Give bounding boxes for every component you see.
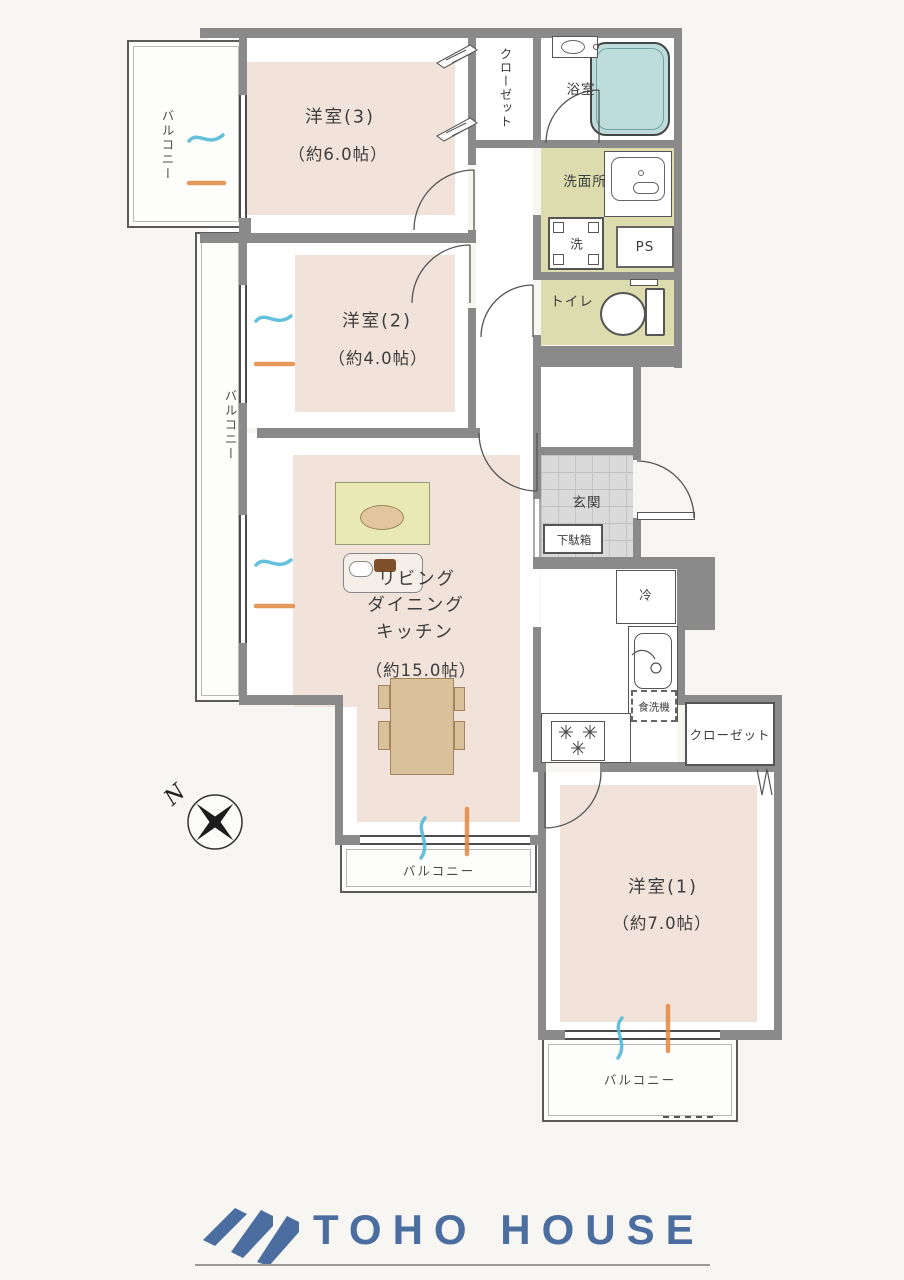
burner-icon xyxy=(559,725,573,739)
drain-icon xyxy=(651,663,661,673)
balcony-topleft-label: バルコニー xyxy=(158,109,177,182)
balcony-bottom-label: バルコニー xyxy=(403,861,475,880)
dishwasher-label: 食洗機 xyxy=(638,700,670,715)
room3-label: 洋室(3) xyxy=(305,104,375,129)
balcony-bottomright-label: バルコニー xyxy=(604,1070,676,1089)
toilet-label: トイレ xyxy=(550,290,594,310)
compass-north-label: N xyxy=(159,779,191,812)
vent-cool-icon xyxy=(256,316,291,321)
fridge-label: 冷 xyxy=(639,585,653,604)
door-arc-entrance xyxy=(637,461,694,518)
kitchen-sink-details xyxy=(632,650,661,673)
stove-burners xyxy=(559,725,597,755)
compass: N xyxy=(159,779,242,849)
closet-door-symbol xyxy=(437,118,477,141)
room2-label: 洋室(2) xyxy=(342,308,412,333)
genkan-label: 玄関 xyxy=(573,491,602,511)
folding-door-symbol xyxy=(757,769,772,795)
toho-house-logo-text: TOHO HOUSE xyxy=(313,1206,705,1254)
ldk-label-living: リビング xyxy=(378,566,456,591)
room2-size-label: （約4.0帖） xyxy=(328,345,427,369)
ldk-label-kitchen: キッチン xyxy=(376,619,454,644)
door-arcs xyxy=(412,90,694,828)
burner-icon xyxy=(583,725,597,739)
toho-house-logo-mark xyxy=(199,1194,319,1266)
floor-plan-page: N 洋室(3) （約6.0帖） クローゼット 浴室 洗面所 洗 PS トイレ 洋… xyxy=(0,0,904,1280)
tub-drain-icon xyxy=(594,45,599,50)
washroom-label: 洗面所 xyxy=(563,170,607,190)
closet-bottom-label: クローゼット xyxy=(689,725,770,744)
vent-warm-marks xyxy=(189,183,668,1051)
vent-cool-icon xyxy=(256,560,291,565)
door-arc-room1 xyxy=(545,772,601,828)
balcony-left-label: バルコニー xyxy=(221,389,240,462)
faucet-icon xyxy=(632,650,655,659)
logo-chevrons-icon xyxy=(203,1208,299,1266)
room1-label: 洋室(1) xyxy=(628,874,698,899)
room1-size-label: （約7.0帖） xyxy=(612,910,711,934)
ldk-label-dining: ダイニング xyxy=(367,592,465,617)
bathroom-label: 浴室 xyxy=(567,78,596,98)
room3-size-label: （約6.0帖） xyxy=(288,141,387,165)
door-arc-ldk xyxy=(479,433,537,491)
vent-cool-icon xyxy=(421,818,425,858)
pipe-space-label: PS xyxy=(636,239,655,255)
vent-cool-icon xyxy=(618,1018,622,1058)
vent-cool-icon xyxy=(189,135,223,141)
door-arc-room3 xyxy=(414,170,474,230)
closet-top-label: クローゼット xyxy=(496,48,515,129)
closet-door-symbol xyxy=(437,45,477,68)
shoe-cabinet-label: 下駄箱 xyxy=(557,532,592,548)
door-arc-room2 xyxy=(412,245,470,303)
logo-underline xyxy=(195,1264,710,1266)
ldk-size-label: （約15.0帖） xyxy=(366,657,477,681)
closet-sliding-doors xyxy=(437,45,477,141)
burner-icon xyxy=(571,741,585,755)
laundry-label: 洗 xyxy=(570,234,584,253)
door-arc-toilet xyxy=(481,285,533,337)
toho-house-logo: TOHO HOUSE xyxy=(185,1192,750,1274)
